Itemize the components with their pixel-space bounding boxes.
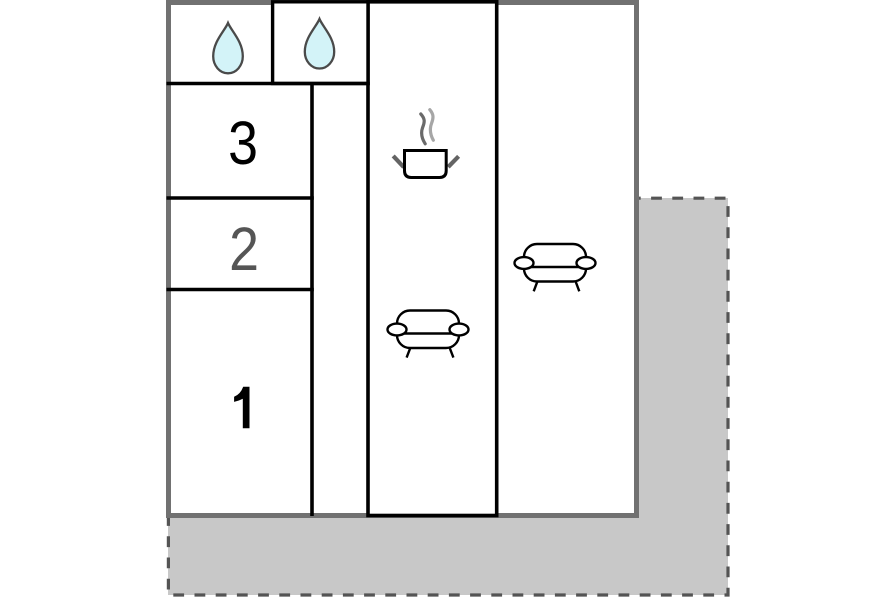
svg-text:2: 2 — [229, 216, 259, 284]
svg-text:3: 3 — [228, 110, 258, 178]
